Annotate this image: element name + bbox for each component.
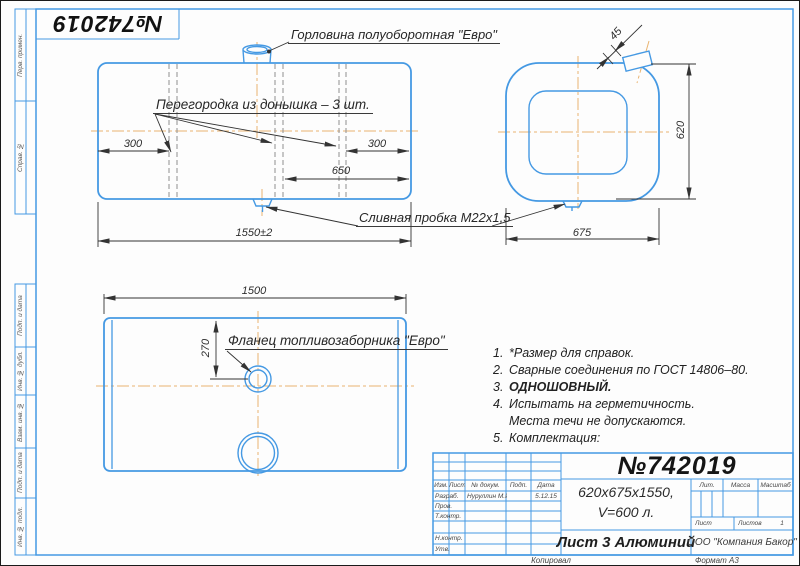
titleblock-material: Лист 3 Алюминий xyxy=(561,531,691,553)
note-line: 5.Комплектация: xyxy=(493,430,793,447)
front-view xyxy=(98,45,411,212)
margin-label-podp-data1: Подп. и дата xyxy=(15,284,26,347)
note-line: 1.*Размер для справок. xyxy=(493,345,793,362)
titleblock-dimensions: 620х675х1550, xyxy=(561,484,691,500)
note-number: 4. xyxy=(493,396,509,413)
tb-row-tkontr: Т.контр. xyxy=(435,513,465,520)
tb-row-utv: Утв. xyxy=(435,546,465,553)
note-text: *Размер для справок. xyxy=(509,345,634,362)
dim-300-left: 300 xyxy=(108,138,158,150)
drain-plug-end xyxy=(563,201,582,211)
dimension-lines xyxy=(98,25,696,379)
margin-label-inv-podl: Инв. № подл. xyxy=(15,498,26,555)
margin-label-vzam-inv: Взам. инв. № xyxy=(15,395,26,448)
margin-label-inv-dubl: Инв. № дубл. xyxy=(15,347,26,395)
partition-callout: Перегородка из донышка – 3 шт. xyxy=(153,97,373,114)
note-text: Комплектация: xyxy=(509,430,600,447)
drain-callout: Сливная пробка М22х1,5 xyxy=(356,210,513,227)
drawing-sheet: №742019 Перв. примен. Справ. № Подп. и д… xyxy=(0,0,800,566)
note-text: ОДНОШОВНЫЙ. xyxy=(509,379,611,396)
tb-col-doc: № докум. xyxy=(465,482,506,489)
tb-lit: Лит. xyxy=(691,482,723,489)
note-text: Места течи не допускаются. xyxy=(509,413,686,430)
tb-row-razrab: Разраб. xyxy=(435,493,465,500)
tb-listov-label: Листов xyxy=(738,520,770,527)
tb-row-nkontr: Н.контр. xyxy=(435,535,465,542)
neck-callout: Горловина полуоборотная "Евро" xyxy=(288,27,500,44)
dim-675: 675 xyxy=(557,227,607,239)
note-number: 2. xyxy=(493,362,509,379)
titleblock-company: ООО "Компания Бакор" xyxy=(691,531,793,553)
tb-razrab-name: Нуруллин М.И xyxy=(467,493,507,500)
tb-masshtab: Масштаб xyxy=(758,482,793,489)
tb-razrab-date: 5.12.15 xyxy=(531,493,561,500)
note-line: 4.Испытать на герметичность. xyxy=(493,396,793,413)
tb-list-label: Лист xyxy=(695,520,725,527)
flange-callout: Фланец топливозаборника "Евро" xyxy=(225,333,448,350)
tb-massa: Масса xyxy=(723,482,758,489)
stamp-number: №742019 xyxy=(37,10,178,38)
dim-650: 650 xyxy=(316,165,366,177)
footer-copied: Копировал xyxy=(519,556,583,565)
note-text: Сварные соединения по ГОСТ 14806–80. xyxy=(509,362,749,379)
tb-row-prov: Пров. xyxy=(435,503,465,510)
note-number: 5. xyxy=(493,430,509,447)
note-line: 2.Сварные соединения по ГОСТ 14806–80. xyxy=(493,362,793,379)
margin-label-sprav-no: Справ. № xyxy=(15,101,26,214)
dim-620: 620 xyxy=(675,110,687,150)
dim-1500: 1500 xyxy=(229,285,279,297)
technical-notes: 1.*Размер для справок. 2.Сварные соедине… xyxy=(493,345,793,447)
note-text: Испытать на герметичность. xyxy=(509,396,695,413)
footer-format-value: А3 xyxy=(729,556,739,565)
filler-neck xyxy=(243,45,271,63)
tb-listov-value: 1 xyxy=(776,520,788,527)
dim-270: 270 xyxy=(200,328,212,368)
tb-col-izm: Изм. xyxy=(433,482,449,489)
dim-300-right: 300 xyxy=(352,138,402,150)
note-number xyxy=(493,413,509,430)
titleblock-volume: V=600 л. xyxy=(561,504,691,520)
tb-col-podp: Подп. xyxy=(506,482,531,489)
drawing-canvas xyxy=(1,1,800,566)
margin-label-podp-data2: Подп. и дата xyxy=(15,448,26,498)
tb-col-list: Лист xyxy=(449,482,465,489)
note-line: Места течи не допускаются. xyxy=(493,413,793,430)
margin-label-perv-primen: Перв. примен. xyxy=(15,9,26,101)
footer-format-label: Формат xyxy=(695,556,727,565)
dim-1550: 1550±2 xyxy=(219,227,289,239)
note-line: 3.ОДНОШОВНЫЙ. xyxy=(493,379,793,396)
note-number: 3. xyxy=(493,379,509,396)
titleblock-doc-number: №742019 xyxy=(561,453,793,479)
note-number: 1. xyxy=(493,345,509,362)
neck-stub xyxy=(623,51,653,71)
leader-lines xyxy=(155,42,565,372)
end-view xyxy=(506,51,659,211)
tb-col-data: Дата xyxy=(531,482,561,489)
